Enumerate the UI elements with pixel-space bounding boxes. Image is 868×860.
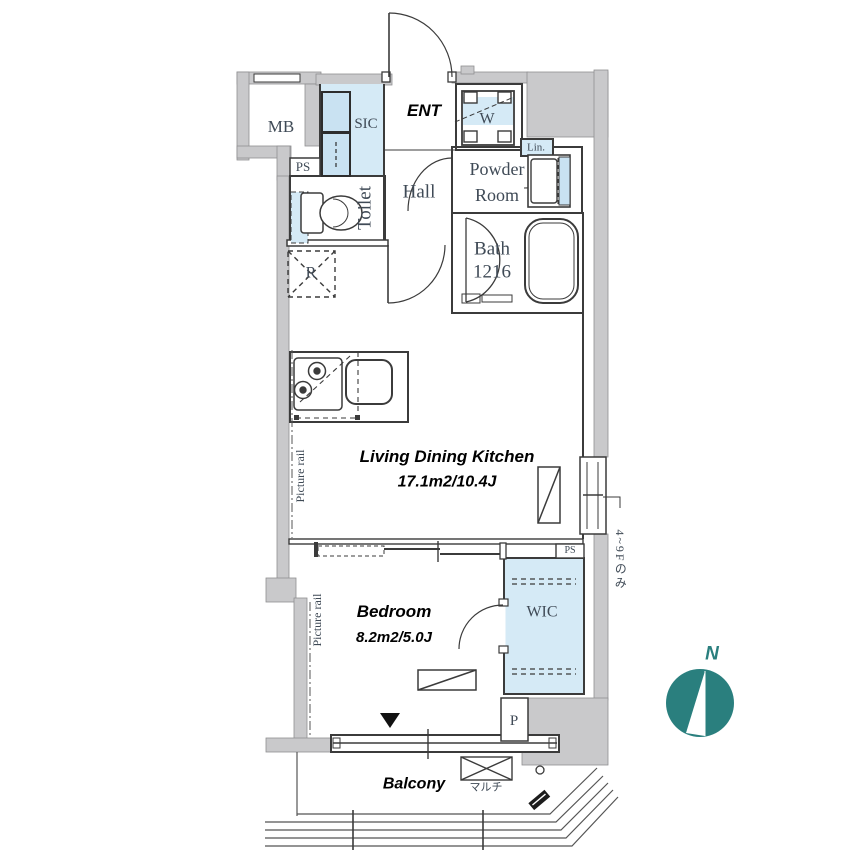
picture-rail-label-bedroom: Picture rail <box>310 594 324 647</box>
room-label-mb: MB <box>268 117 294 137</box>
room-label-ldk: Living Dining Kitchen <box>360 447 535 467</box>
room-label-p: P <box>510 712 518 730</box>
room-label-ldk-size: 17.1m2/10.4J <box>398 472 497 491</box>
room-label-balcony: Balcony <box>383 774 445 793</box>
mb-door <box>254 74 300 82</box>
hall-door-arc <box>388 245 445 303</box>
room-label-wic: WIC <box>526 602 557 621</box>
bedroom-desk <box>418 670 476 690</box>
floor-plan-drawing <box>0 0 868 860</box>
room-label-bedroom-size: 8.2m2/5.0J <box>356 629 432 647</box>
label-multi: マルチ <box>470 781 503 794</box>
room-label-bedroom: Bedroom <box>357 602 432 622</box>
east-window <box>580 457 620 534</box>
balcony-drain-circle <box>536 766 544 774</box>
room-label-ps-mid: PS <box>564 545 575 557</box>
multi-outlet-box <box>461 757 512 780</box>
room-label-toilet: Toilet <box>355 186 378 230</box>
room-label-powder-1: Powder <box>470 159 525 181</box>
room-label-bath: Bath <box>474 239 510 262</box>
entrance-door-arc <box>382 13 456 82</box>
compass-north-icon <box>666 669 734 737</box>
room-label-refrigerator: R <box>306 263 317 282</box>
kitchen-counter <box>290 352 408 422</box>
room-label-sic: SIC <box>354 115 377 133</box>
shoe-cabinet <box>322 92 350 176</box>
window-triangle-marker <box>380 713 400 728</box>
toilet-fixture-icon <box>291 192 362 243</box>
room-label-powder-2: Room <box>475 185 519 207</box>
room-label-washer: W <box>479 109 494 128</box>
label-floors-note: 4~9Fのみ <box>613 529 627 590</box>
balcony-railing <box>265 752 618 850</box>
room-label-linen: Lin. <box>527 141 545 154</box>
room-label-ent: ENT <box>407 101 441 121</box>
floor-plan-page: MB PS SIC ENT W Lin. Powder Room Hall To… <box>0 0 868 860</box>
room-label-ps-top: PS <box>296 159 310 175</box>
balcony-step-block <box>528 790 550 810</box>
picture-rail-label-ldk: Picture rail <box>293 450 307 503</box>
ldk-cabinet <box>538 467 560 523</box>
compass-n-label: N <box>705 644 719 667</box>
room-label-bath-size: 1216 <box>473 262 511 285</box>
wic-door-arc <box>459 599 508 653</box>
room-label-hall: Hall <box>403 182 436 205</box>
